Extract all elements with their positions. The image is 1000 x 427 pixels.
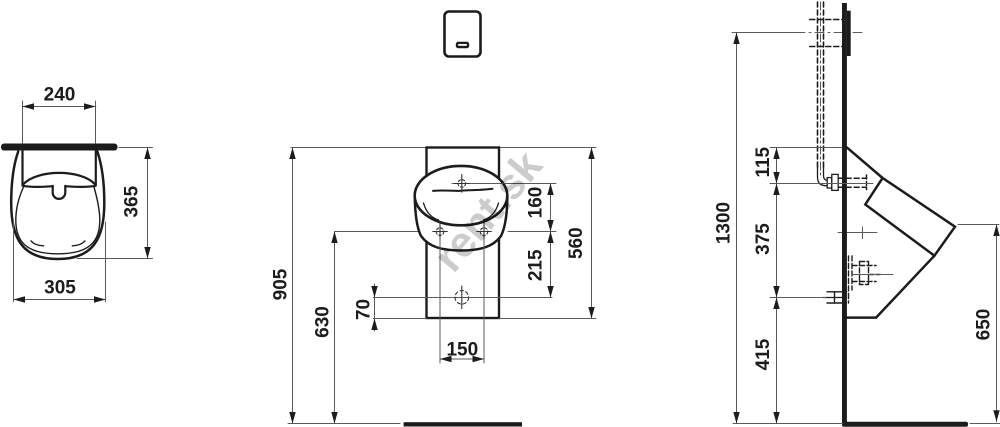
svg-text:365: 365 [122, 185, 143, 217]
svg-text:650: 650 [973, 309, 994, 341]
svg-text:375: 375 [753, 223, 774, 255]
svg-text:305: 305 [44, 278, 76, 299]
svg-text:115: 115 [753, 146, 774, 177]
svg-text:70: 70 [353, 299, 374, 320]
svg-text:560: 560 [566, 227, 587, 259]
svg-text:150: 150 [446, 340, 478, 361]
svg-text:215: 215 [525, 249, 546, 281]
svg-text:630: 630 [312, 306, 333, 338]
svg-text:1300: 1300 [713, 202, 734, 244]
svg-text:905: 905 [270, 268, 291, 300]
svg-text:240: 240 [44, 85, 76, 106]
svg-text:415: 415 [753, 338, 774, 370]
